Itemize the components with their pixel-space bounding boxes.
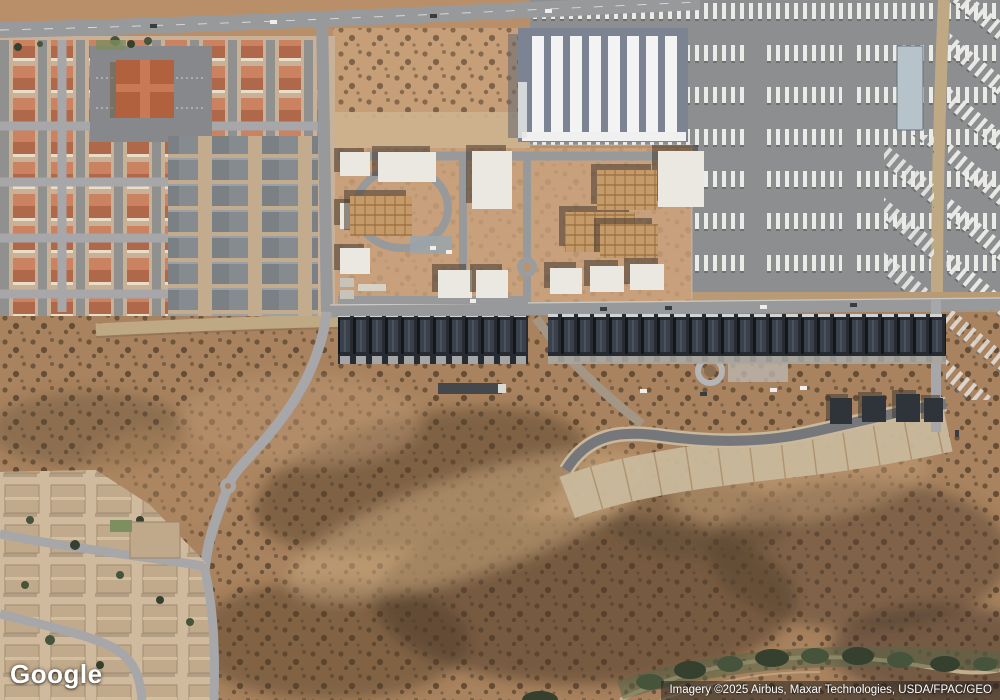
gray-roof-homes <box>168 136 318 316</box>
imagery-attribution: Imagery ©2025 Airbus, Maxar Technologies… <box>661 681 1000 700</box>
construction-trailer <box>438 383 502 394</box>
residential-area-northwest <box>0 36 335 316</box>
map-viewport[interactable]: Google Imagery ©2025 Airbus, Maxar Techn… <box>0 0 1000 700</box>
google-logo[interactable]: Google <box>10 659 103 690</box>
vacant-lot <box>333 28 530 150</box>
townhouse-row-east <box>548 314 946 362</box>
satellite-imagery <box>0 0 1000 700</box>
townhouse-rows <box>338 314 946 364</box>
townhouse-row-west <box>338 316 528 364</box>
north-south-road <box>322 16 327 312</box>
storage-building <box>897 46 923 130</box>
warehouse-building <box>508 28 688 142</box>
